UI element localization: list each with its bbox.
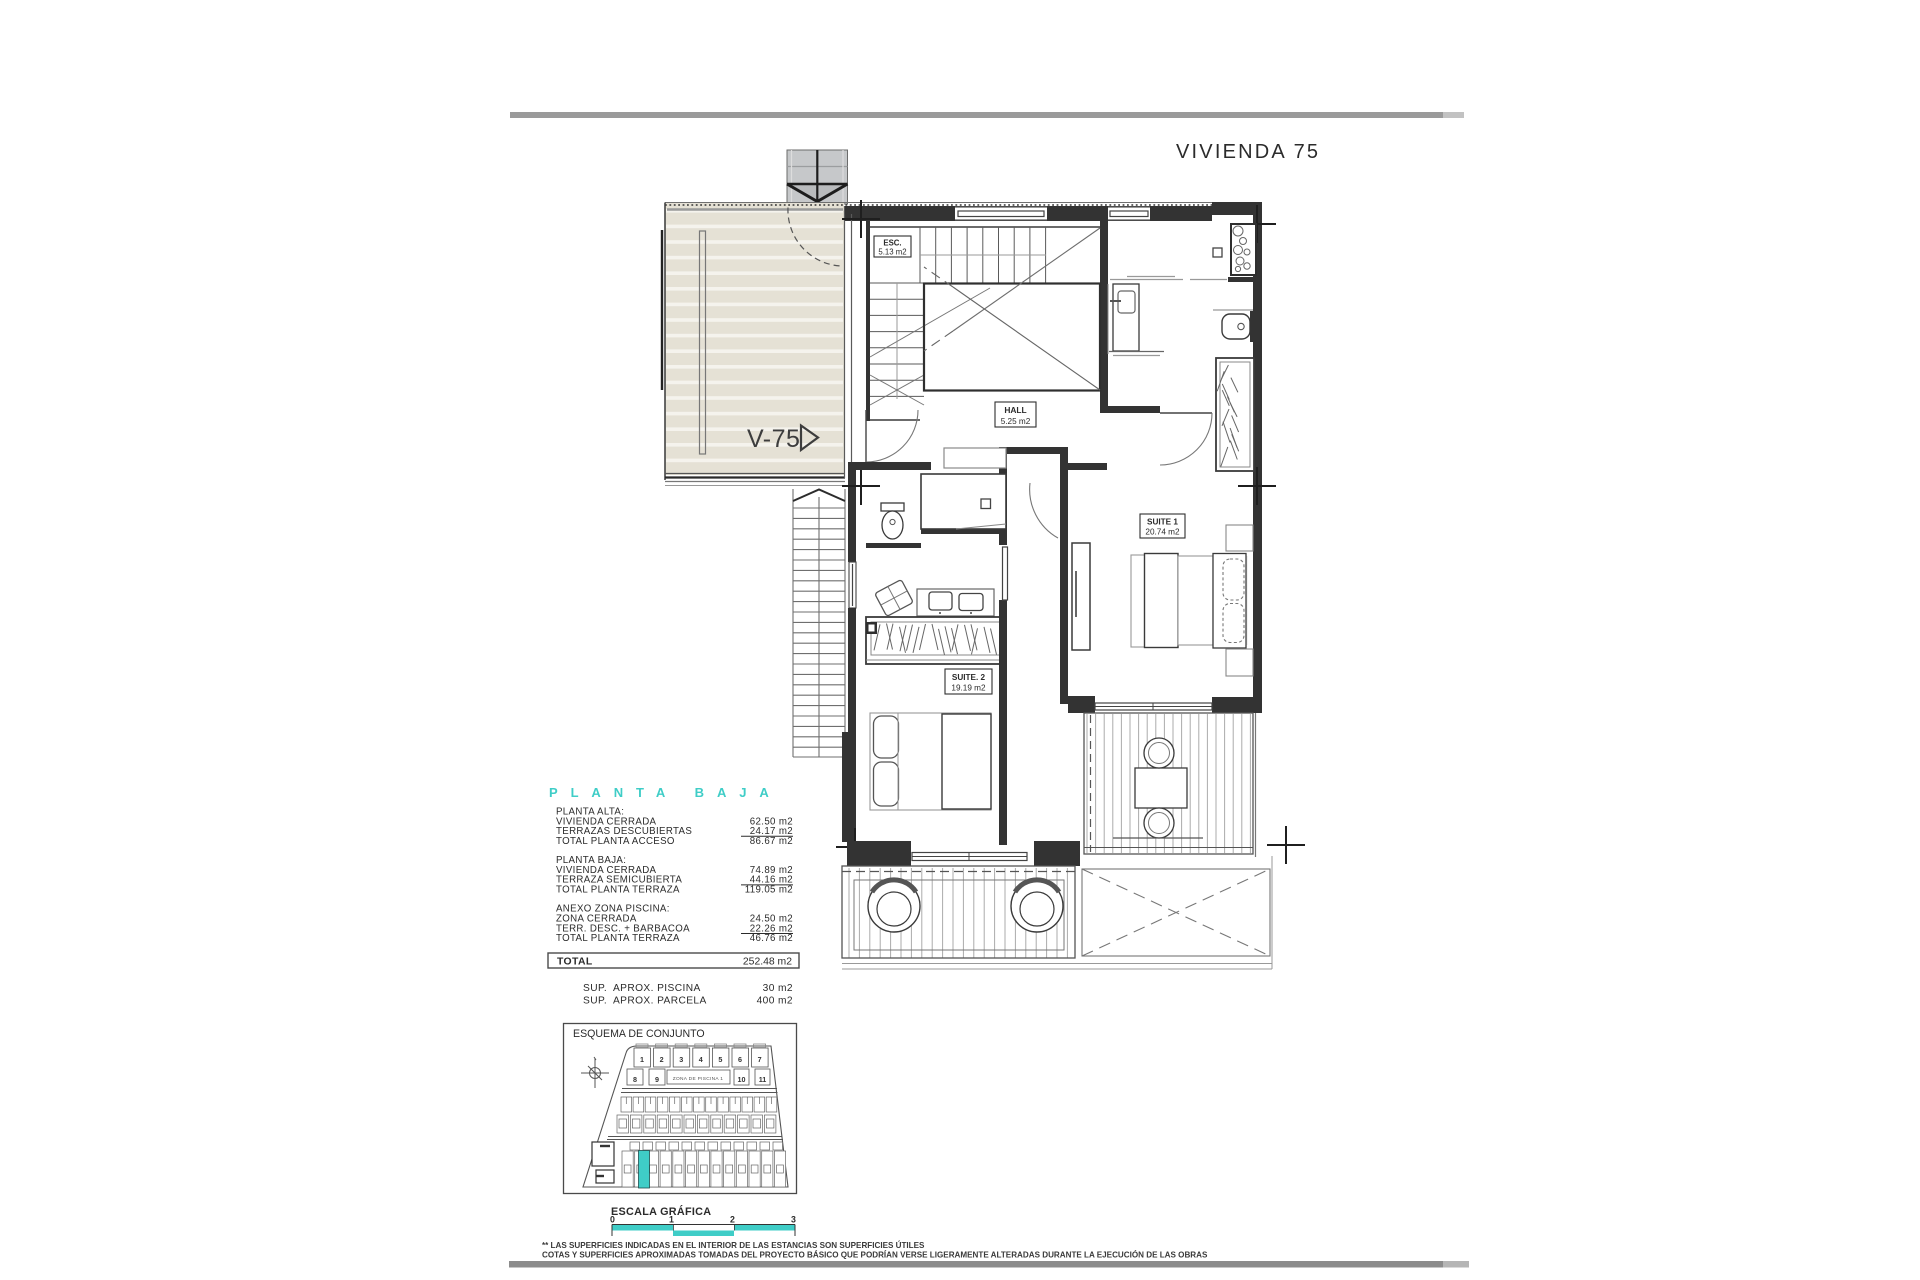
svg-text:2: 2 xyxy=(660,1055,664,1064)
svg-text:TOTAL PLANTA TERRAZA: TOTAL PLANTA TERRAZA xyxy=(556,933,680,944)
svg-text:8: 8 xyxy=(633,1075,637,1084)
svg-text:SUITE. 2: SUITE. 2 xyxy=(952,673,986,682)
svg-text:3: 3 xyxy=(791,1215,796,1225)
svg-text:5.13 m2: 5.13 m2 xyxy=(878,248,906,257)
svg-text:PLANTA BAJA: PLANTA BAJA xyxy=(549,785,782,800)
svg-text:ESC.: ESC. xyxy=(883,239,901,248)
svg-text:ESQUEMA DE CONJUNTO: ESQUEMA DE CONJUNTO xyxy=(573,1028,705,1040)
svg-text:5: 5 xyxy=(718,1055,722,1064)
svg-text:7: 7 xyxy=(758,1055,762,1064)
svg-text:11: 11 xyxy=(759,1075,767,1084)
svg-text:V-75: V-75 xyxy=(747,425,800,453)
svg-text:19.19 m2: 19.19 m2 xyxy=(951,684,986,693)
svg-text:252.48 m2: 252.48 m2 xyxy=(743,957,792,968)
svg-text:5.25 m2: 5.25 m2 xyxy=(1001,417,1031,426)
svg-text:6: 6 xyxy=(738,1055,742,1064)
svg-text:1: 1 xyxy=(669,1215,674,1225)
svg-text:1: 1 xyxy=(640,1055,644,1064)
svg-text:TOTAL PLANTA ACCESO: TOTAL PLANTA ACCESO xyxy=(556,836,675,847)
svg-text:SUP. APROX. PISCINA: SUP. APROX. PISCINA xyxy=(583,983,701,994)
svg-text:4: 4 xyxy=(699,1055,703,1064)
svg-text:400 m2: 400 m2 xyxy=(757,996,793,1007)
svg-text:TOTAL PLANTA TERRAZA: TOTAL PLANTA TERRAZA xyxy=(556,885,680,896)
svg-text:HALL: HALL xyxy=(1004,405,1026,415)
svg-text:** LAS SUPERFICIES INDICADAS E: ** LAS SUPERFICIES INDICADAS EN EL INTER… xyxy=(542,1241,925,1250)
svg-text:0: 0 xyxy=(610,1215,615,1225)
svg-text:46.76 m2: 46.76 m2 xyxy=(750,933,793,944)
svg-text:COTAS Y SUPERFICIES APROXIMADA: COTAS Y SUPERFICIES APROXIMADAS TOMADAS … xyxy=(542,1251,1208,1260)
svg-text:ZONA DE PISCINA 1: ZONA DE PISCINA 1 xyxy=(673,1076,723,1082)
svg-text:2: 2 xyxy=(730,1215,735,1225)
svg-text:SUITE 1: SUITE 1 xyxy=(1147,518,1178,527)
svg-text:30 m2: 30 m2 xyxy=(763,983,793,994)
svg-text:10: 10 xyxy=(738,1075,746,1084)
svg-text:ESCALA GRÁFICA: ESCALA GRÁFICA xyxy=(611,1205,711,1218)
svg-text:TOTAL: TOTAL xyxy=(557,957,593,968)
svg-text:20.74 m2: 20.74 m2 xyxy=(1145,528,1180,537)
svg-text:VIVIENDA 75: VIVIENDA 75 xyxy=(1176,141,1320,163)
svg-text:119.05 m2: 119.05 m2 xyxy=(745,885,793,896)
svg-text:SUP. APROX. PARCELA: SUP. APROX. PARCELA xyxy=(583,996,707,1007)
svg-text:9: 9 xyxy=(655,1075,659,1084)
svg-text:3: 3 xyxy=(679,1055,683,1064)
svg-text:86.67 m2: 86.67 m2 xyxy=(750,836,793,847)
